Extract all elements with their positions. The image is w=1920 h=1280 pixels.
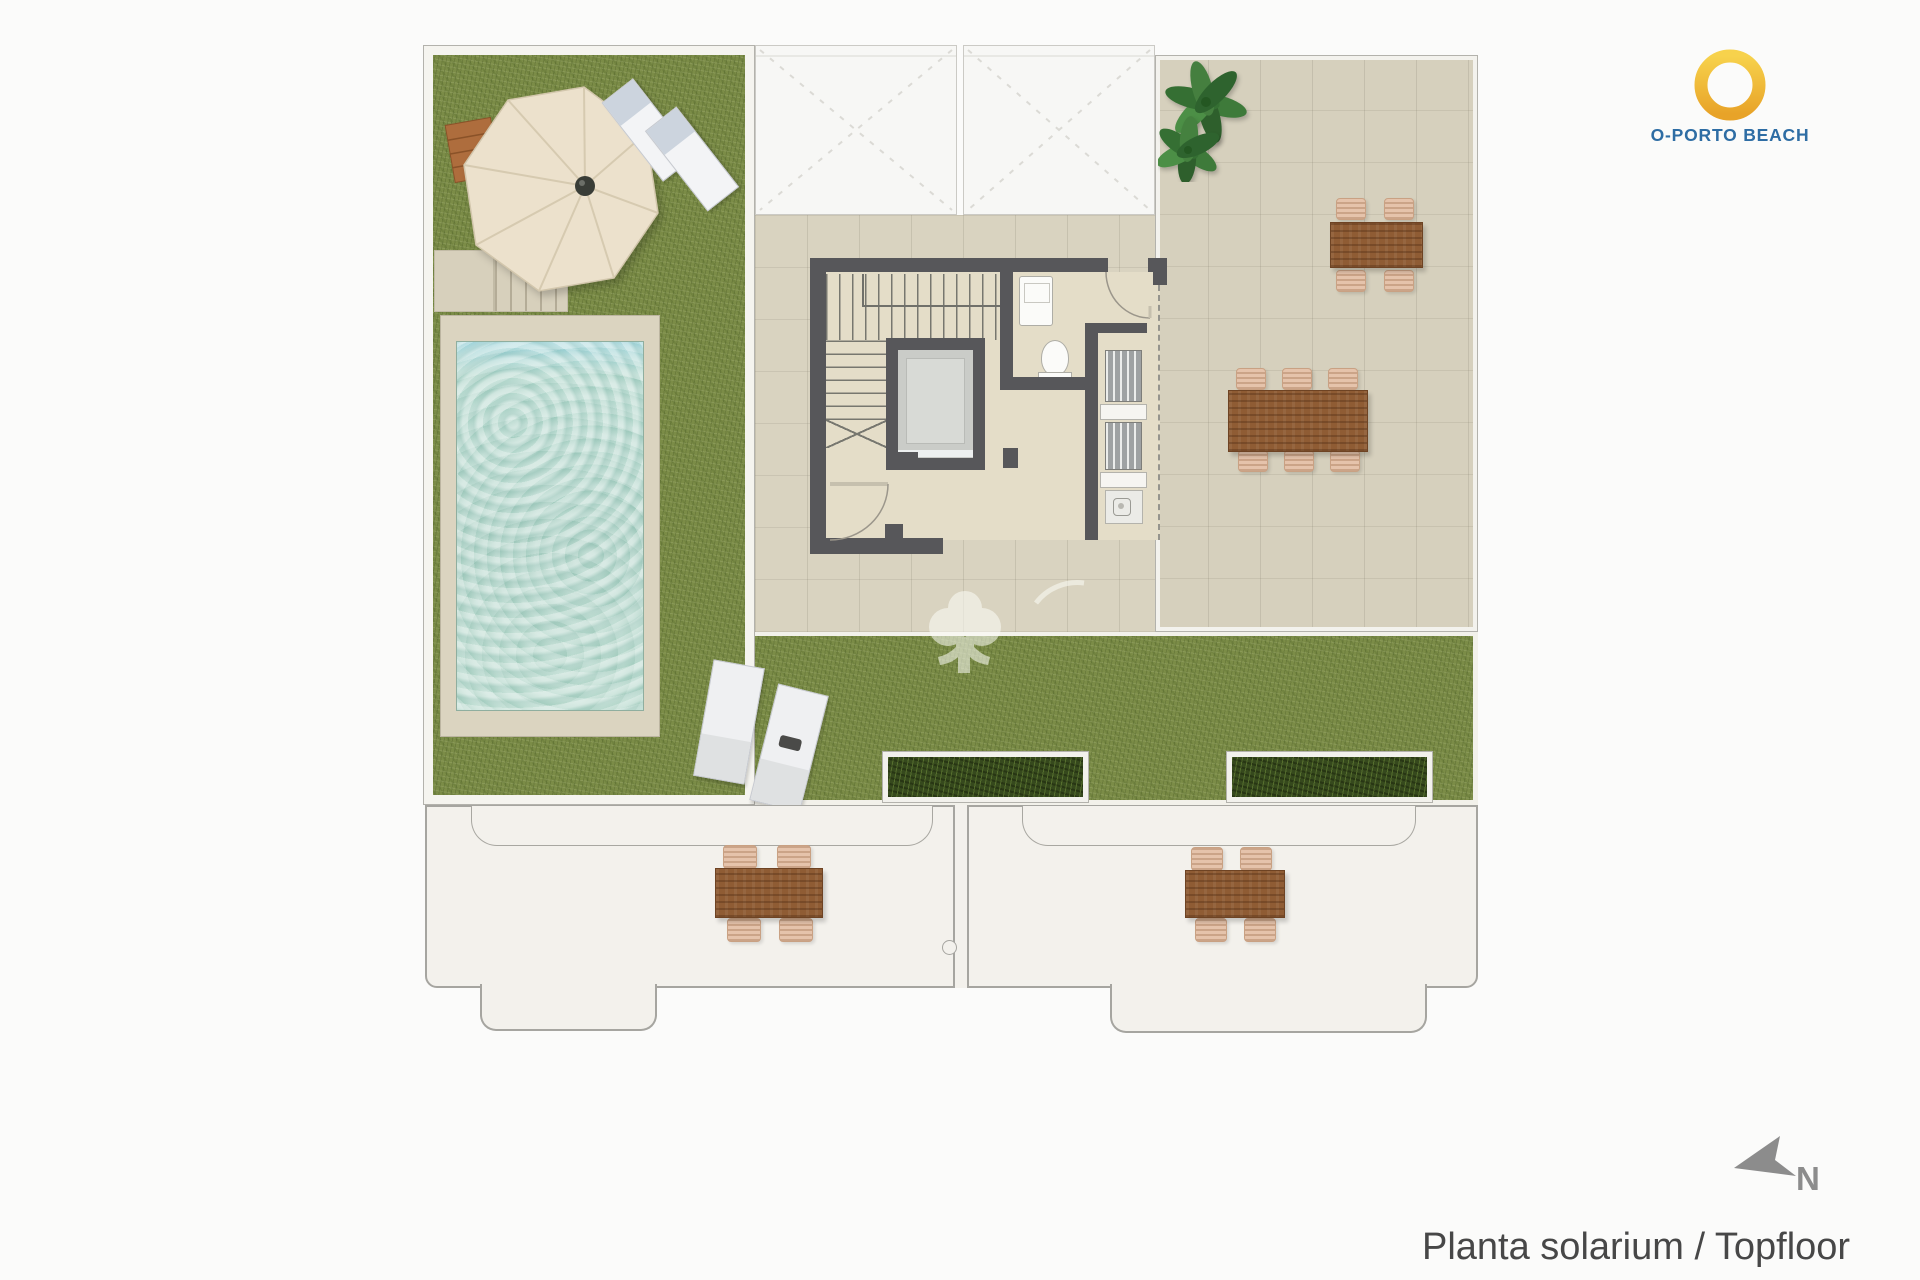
chair [1328, 368, 1358, 390]
wall-top [810, 258, 1108, 272]
dining-table [715, 868, 823, 918]
wall-segment [886, 452, 918, 470]
dining-table [1330, 222, 1423, 268]
chair [1384, 198, 1414, 220]
stair-rail [862, 305, 1010, 307]
chair [1282, 368, 1312, 390]
utility-unit [1105, 350, 1142, 402]
void-skylight [755, 45, 957, 215]
logo-text: O-PORTO BEACH [1640, 125, 1820, 146]
wall-utility-left [1085, 323, 1098, 540]
chair [1384, 270, 1414, 292]
chair [1336, 270, 1366, 292]
planter-box [883, 752, 1088, 802]
balcony-rail [1022, 806, 1416, 846]
toilet-icon [1041, 340, 1069, 376]
chair [1236, 368, 1266, 390]
elevator-car-inner [906, 358, 965, 444]
stairs-lower-flight [826, 340, 888, 420]
chair [1240, 847, 1272, 871]
shelf [1100, 472, 1147, 488]
pool-water [456, 341, 644, 711]
chair [1195, 918, 1227, 942]
stairs-upper-flight [826, 274, 1010, 340]
chair [1336, 198, 1366, 220]
utility-unit [1105, 422, 1142, 470]
sink-icon [1019, 276, 1053, 326]
towel [778, 735, 802, 752]
balcony-divider [953, 805, 969, 988]
balcony-step [480, 984, 657, 1031]
wall-segment [1003, 448, 1018, 468]
plant-icon [1158, 52, 1258, 182]
floor-plan-page: O-PORTO BEACH N Planta solarium / Topflo… [0, 0, 1920, 1280]
stair-rail [862, 274, 864, 307]
chair [1244, 918, 1276, 942]
dining-table [1228, 390, 1368, 452]
chair [727, 918, 761, 942]
north-label: N [1796, 1160, 1820, 1198]
void-skylight [963, 45, 1155, 215]
chair [723, 845, 757, 869]
planter-box [1227, 752, 1432, 802]
shelf [1100, 404, 1147, 420]
dashed-boundary [1158, 285, 1160, 540]
wall-stair-bath [1000, 272, 1013, 390]
balcony-rail [471, 806, 933, 846]
chair [777, 845, 811, 869]
chair [1284, 450, 1314, 472]
void-cross-lines [756, 46, 956, 214]
logo-ring-icon [1690, 45, 1770, 125]
door-swing [1098, 266, 1156, 324]
chair [1191, 847, 1223, 871]
chair [1330, 450, 1360, 472]
stair-landing [826, 420, 888, 448]
stair-core [810, 258, 1167, 570]
wall-left [810, 272, 826, 545]
appliance [1105, 490, 1143, 524]
void-cross-lines [964, 46, 1154, 214]
watermark-tree-icon [912, 575, 1092, 690]
balcony-step [1110, 984, 1427, 1033]
caption-text: Planta solarium / Topfloor [1422, 1226, 1850, 1269]
chair [779, 918, 813, 942]
door-swing [826, 478, 892, 544]
chair [1238, 450, 1268, 472]
balcony-left [425, 805, 957, 988]
dining-table [1185, 870, 1285, 918]
divider-hinge [942, 940, 957, 955]
wall-bath-bottom [1000, 377, 1085, 390]
